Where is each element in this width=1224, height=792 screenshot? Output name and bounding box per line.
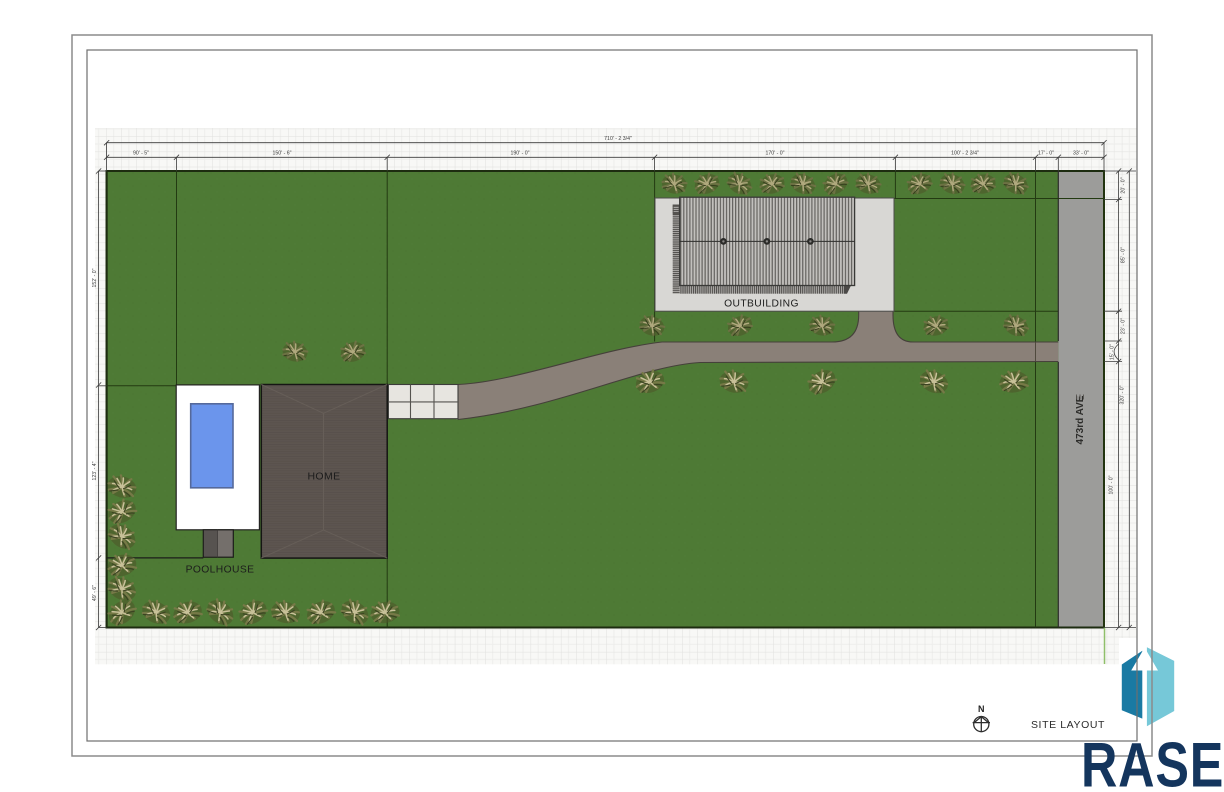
svg-text:100' - 2 3/4": 100' - 2 3/4" — [951, 151, 979, 157]
svg-text:49' - 6": 49' - 6" — [92, 585, 98, 601]
svg-text:OUTBUILDING: OUTBUILDING — [724, 299, 799, 310]
svg-text:RASE: RASE — [1081, 730, 1224, 792]
svg-text:320' - 0": 320' - 0" — [1120, 385, 1126, 404]
svg-text:710' - 2 3/4": 710' - 2 3/4" — [604, 136, 632, 142]
svg-text:20' - 0": 20' - 0" — [1121, 177, 1127, 193]
svg-text:33' - 0": 33' - 0" — [1073, 151, 1089, 157]
svg-text:15' - 0": 15' - 0" — [1110, 344, 1116, 360]
svg-text:100' - 0": 100' - 0" — [1109, 475, 1115, 494]
svg-text:POOLHOUSE: POOLHOUSE — [186, 564, 255, 575]
svg-text:190' - 0": 190' - 0" — [511, 151, 530, 157]
svg-text:HOME: HOME — [307, 471, 340, 483]
svg-text:23' - 0": 23' - 0" — [1121, 318, 1127, 334]
svg-text:90' - 5": 90' - 5" — [133, 151, 149, 157]
svg-text:150' - 6": 150' - 6" — [273, 151, 292, 157]
svg-text:170' - 0": 170' - 0" — [766, 151, 785, 157]
svg-text:85' - 0": 85' - 0" — [1121, 247, 1127, 263]
svg-text:473rd AVE: 473rd AVE — [1075, 395, 1086, 444]
svg-text:152' - 0": 152' - 0" — [92, 268, 98, 287]
svg-text:123' - 4": 123' - 4" — [92, 461, 98, 480]
svg-text:17' - 0": 17' - 0" — [1038, 151, 1054, 157]
svg-text:N: N — [978, 704, 985, 714]
